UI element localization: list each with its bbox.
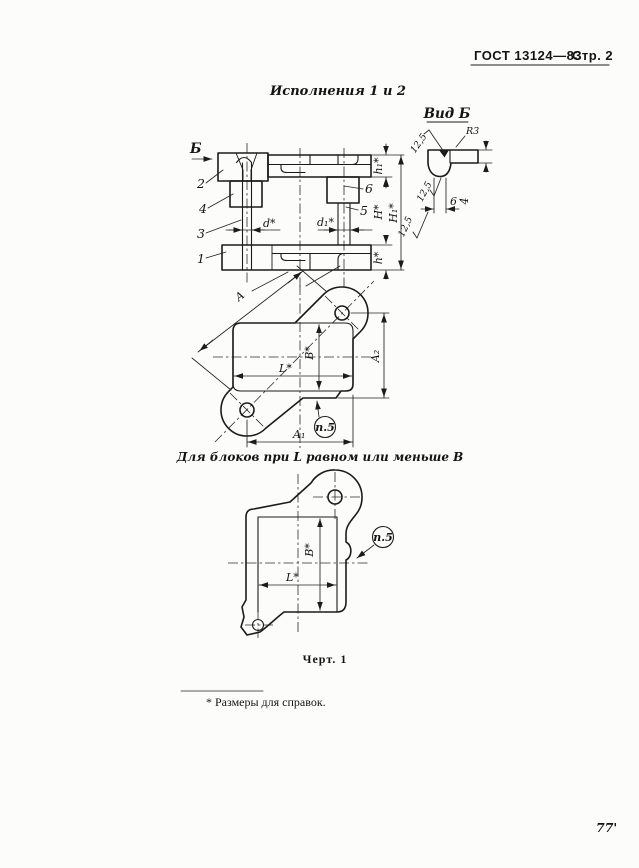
view-b-title: Вид Б: [423, 106, 471, 122]
dim-B: B*: [303, 325, 319, 390]
page-label: Стр. 2: [572, 48, 613, 63]
dim-d1: d₁*: [317, 216, 372, 230]
height-dims: h₁* H* h* H₁*: [371, 144, 404, 279]
item-5: 5: [360, 203, 368, 218]
dim-A2-label: A₂: [369, 350, 382, 363]
dim-H-label: H*: [372, 204, 385, 221]
page-header: ГОСТ 13124—83 Стр. 2: [471, 48, 613, 65]
front-view: Б 2 4 3 1 6 5 d* d₁: [189, 141, 404, 290]
dim-B-narrow-label: B*: [303, 543, 316, 558]
footnote-text: * Размеры для справок.: [206, 695, 326, 709]
plan-view: A B* L* A₂: [192, 266, 389, 448]
document-page: ГОСТ 13124—83 Стр. 2 Исполнения 1 и 2: [0, 0, 639, 868]
dim-A: A: [192, 266, 327, 390]
item-3: 3: [197, 226, 205, 241]
note-p5-wide: п.5: [315, 401, 336, 438]
dim-4-label: 4: [458, 198, 471, 206]
item-2: 2: [196, 176, 205, 191]
dim-L-label: L*: [278, 362, 292, 375]
item-4: 4: [198, 201, 207, 216]
view-b-arrow: Б: [189, 141, 212, 159]
dim-L-narrow-label: L*: [285, 571, 299, 584]
dim-A1-label: A₁: [292, 428, 305, 441]
dim-h-label: h*: [372, 251, 385, 264]
item-6: 6: [365, 181, 373, 196]
dim-A2: A₂: [338, 313, 389, 398]
dim-d: d*: [226, 217, 280, 230]
figure-caption: Черт. 1: [303, 652, 348, 666]
radius-label: R3: [465, 126, 479, 137]
dim-d-label: d*: [263, 217, 276, 230]
note-p5-wide-label: п.5: [315, 421, 334, 434]
roughness-top: 12,5: [408, 132, 429, 156]
gost-number: ГОСТ 13124—83: [474, 48, 582, 63]
dim-L: L*: [234, 362, 352, 376]
dim-H1-label: H₁*: [387, 203, 400, 224]
footnote: * Размеры для справок.: [181, 691, 326, 709]
variants-title: Исполнения 1 и 2: [269, 84, 406, 99]
dim-B-narrow: B*: [303, 519, 320, 611]
narrow-caption: Для блоков при L равном или меньше В: [176, 450, 464, 464]
view-b-detail: Вид Б 12,5 R3 4 12,5 6 12,5: [396, 106, 492, 239]
note-p5-narrow: п.5: [357, 527, 394, 559]
note-p5-narrow-label: п.5: [373, 531, 392, 544]
narrow-view: B* L* п.5: [228, 470, 394, 638]
view-arrow-label: Б: [189, 141, 202, 157]
dim-h1-label: h₁*: [372, 157, 385, 174]
drawing-sheet: ГОСТ 13124—83 Стр. 2 Исполнения 1 и 2: [0, 0, 639, 868]
item-1: 1: [197, 251, 205, 266]
dim-A-label: A: [232, 289, 247, 305]
dim-d1-label: d₁*: [317, 216, 334, 229]
dim-L-narrow: L*: [259, 571, 336, 585]
page-number: 77': [596, 820, 617, 835]
dim-6-label: 6: [450, 195, 457, 208]
dim-B-label: B*: [303, 346, 316, 361]
